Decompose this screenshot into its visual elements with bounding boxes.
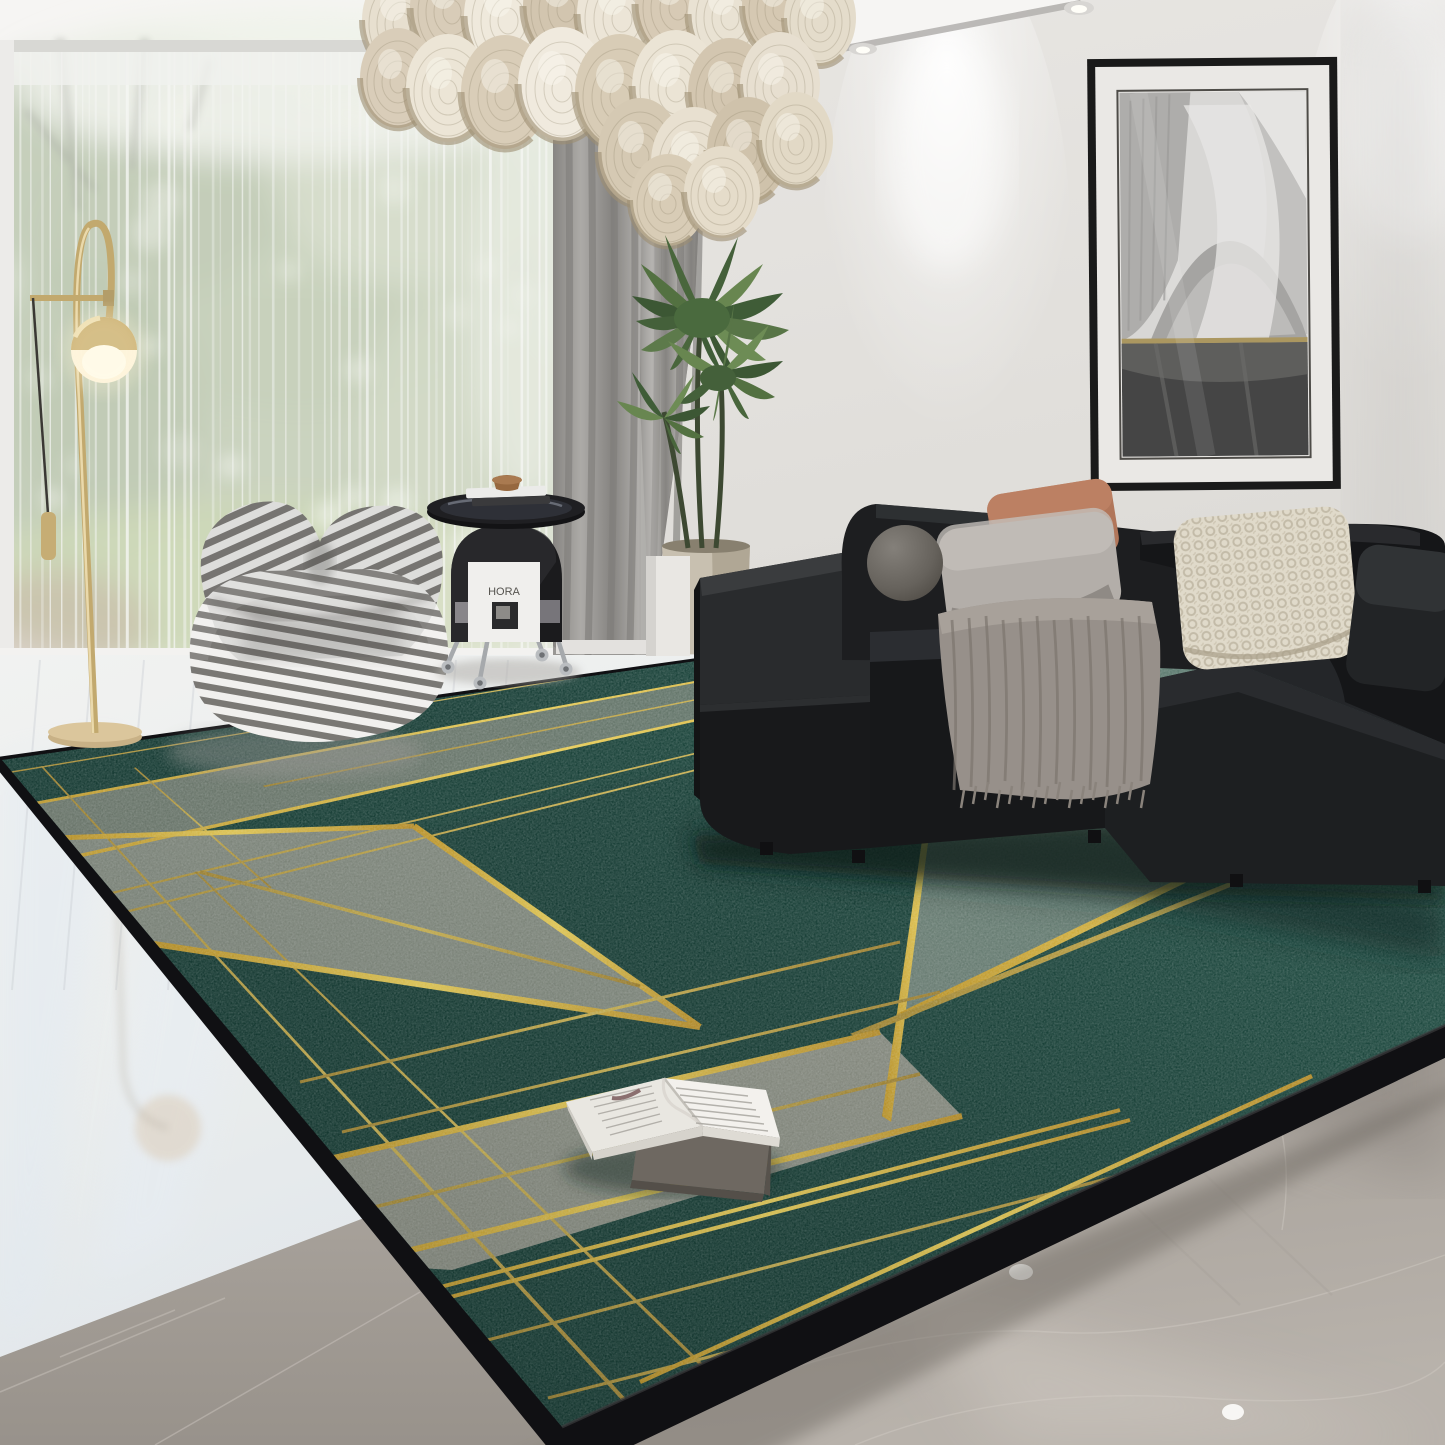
svg-text:HORA: HORA — [488, 586, 520, 598]
